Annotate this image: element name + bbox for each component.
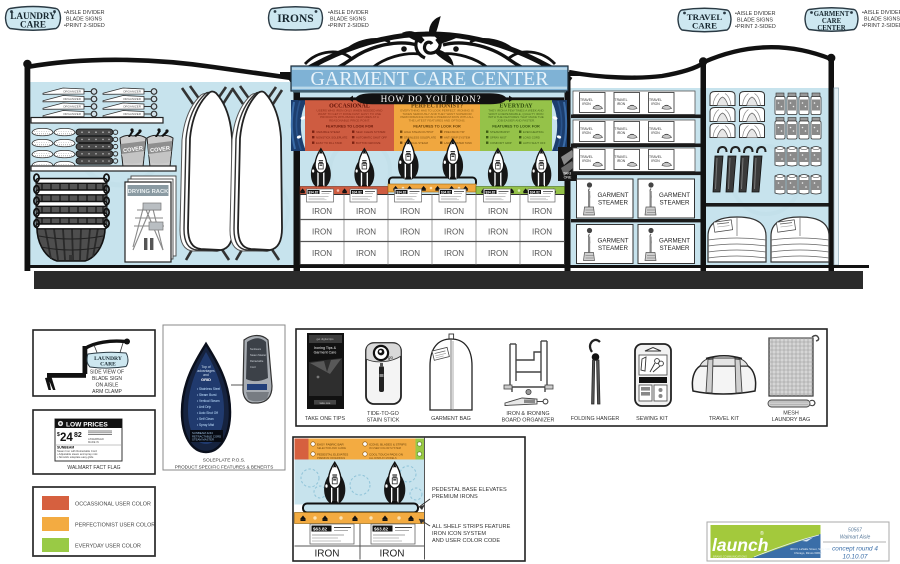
svg-text:IRON: IRON: [356, 228, 376, 237]
svg-text:IRONS: IRONS: [277, 13, 313, 25]
svg-text:ANTI DRIP SYSTEM: ANTI DRIP SYSTEM: [444, 136, 471, 140]
svg-text:Walmart Aisle: Walmart Aisle: [840, 535, 871, 541]
svg-text:PRECISION TIP: PRECISION TIP: [444, 130, 465, 134]
svg-text:HIGH STEAM OUTPUT: HIGH STEAM OUTPUT: [404, 130, 434, 134]
svg-text:LARGE WATER TANK: LARGE WATER TANK: [444, 141, 472, 145]
svg-text:LONG CORD: LONG CORD: [523, 136, 540, 140]
svg-text:launch: launch: [712, 535, 768, 555]
svg-text:AUTO SHUT OFF: AUTO SHUT OFF: [523, 141, 546, 145]
svg-text:DRYING RACK: DRYING RACK: [128, 189, 169, 195]
svg-text:IRON: IRON: [356, 249, 376, 258]
svg-text:IRON: IRON: [312, 207, 332, 216]
svg-text:concept round 4: concept round 4: [832, 546, 878, 553]
svg-text:SOLEPLATE P.O.S.: SOLEPLATE P.O.S.: [203, 458, 245, 464]
svg-text:$63.82: $63.82: [313, 527, 327, 532]
svg-text:24: 24: [60, 432, 73, 444]
svg-text:COMFORT GRIP: COMFORT GRIP: [490, 141, 512, 145]
svg-text:BLADE SIGNS: BLADE SIGNS: [330, 17, 366, 23]
svg-text:EVERYDAY USER COLOR: EVERYDAY USER COLOR: [75, 544, 141, 550]
svg-text:GARMENT BAG: GARMENT BAG: [431, 416, 471, 422]
svg-text:10.10.07: 10.10.07: [843, 554, 868, 561]
svg-text:BRAND COMMUNICATIONS: BRAND COMMUNICATIONS: [713, 555, 747, 559]
svg-text:CARE: CARE: [20, 20, 46, 30]
svg-text:SELF CLEAN SYSTEM: SELF CLEAN SYSTEM: [356, 130, 386, 134]
svg-text:Steam Master: Steam Master: [250, 353, 266, 357]
svg-text:IRON: IRON: [444, 228, 464, 237]
svg-text:FOLDING HANGER: FOLDING HANGER: [571, 416, 620, 422]
svg-text:LAUNDRY BAG: LAUNDRY BAG: [772, 417, 810, 423]
svg-text:CARE: CARE: [692, 21, 717, 31]
svg-text:SPRAY MIST: SPRAY MIST: [490, 136, 507, 140]
svg-text:• Anti Drip: • Anti Drip: [197, 405, 211, 409]
svg-text:TIDE-TO-GO: TIDE-TO-GO: [367, 411, 399, 417]
svg-text:•PRINT 2-SIDED: •PRINT 2-SIDED: [735, 24, 776, 30]
svg-text:PERFECTIONIST USER COLOR: PERFECTIONIST USER COLOR: [75, 523, 155, 529]
svg-text:IRON: IRON: [356, 207, 376, 216]
svg-text:50567: 50567: [848, 528, 862, 534]
svg-text:IN USER COLOR SYSTEM: IN USER COLOR SYSTEM: [369, 446, 401, 450]
svg-text:ONE: ONE: [564, 176, 572, 180]
svg-text:TRAVEL KIT: TRAVEL KIT: [709, 416, 740, 422]
svg-text:VARIABLE STEAM: VARIABLE STEAM: [316, 130, 341, 134]
svg-text:AND USER COLOR CODE: AND USER COLOR CODE: [432, 538, 500, 544]
svg-text:SELECTOR AND GUIDE: SELECTOR AND GUIDE: [317, 446, 346, 450]
svg-text:BLADE SIGNS: BLADE SIGNS: [737, 18, 773, 24]
svg-text:IRON: IRON: [488, 249, 508, 258]
svg-text:Cord: Cord: [250, 365, 256, 369]
svg-text:BUTTON GROOVE: BUTTON GROOVE: [356, 141, 381, 145]
svg-text:REASONABLE PRICE POINT.: REASONABLE PRICE POINT.: [329, 118, 370, 122]
svg-text:ON AISLE: ON AISLE: [96, 383, 119, 389]
svg-text:Sunbeam: Sunbeam: [250, 347, 261, 351]
svg-text:•PRINT 2-SIDED: •PRINT 2-SIDED: [328, 23, 369, 29]
svg-text:IRON: IRON: [488, 228, 508, 237]
svg-text:NONSTICK SOLEPLATE: NONSTICK SOLEPLATE: [316, 136, 347, 140]
svg-text:MADE IN: MADE IN: [88, 440, 99, 444]
svg-text:FEATURES TO LOOK FOR: FEATURES TO LOOK FOR: [492, 125, 540, 129]
svg-text:IRON: IRON: [488, 207, 508, 216]
svg-text:go: go: [388, 355, 393, 360]
svg-text:IRON: IRON: [312, 249, 332, 258]
svg-text:EASY FABRIC BAR: EASY FABRIC BAR: [317, 443, 344, 447]
svg-text:• Steam Burst: • Steam Burst: [197, 393, 217, 397]
svg-text:HOW DO YOU IRON?: HOW DO YOU IRON?: [381, 94, 482, 104]
svg-text:ALL SHELF STRIPS FEATURE: ALL SHELF STRIPS FEATURE: [432, 524, 511, 530]
svg-text:ALL DISPLAY MODELS: ALL DISPLAY MODELS: [369, 456, 397, 460]
svg-text:STEAM BURST: STEAM BURST: [490, 130, 510, 134]
svg-text:PEDESTAL BASE ELEVATES: PEDESTAL BASE ELEVATES: [432, 487, 507, 493]
svg-text:•AISLE DIVIDER: •AISLE DIVIDER: [328, 10, 369, 16]
svg-text:IRON & IRONING: IRON & IRONING: [506, 411, 549, 417]
svg-text:PREMIUM OFFERINGS: PREMIUM OFFERINGS: [317, 456, 345, 460]
svg-text:take one: take one: [320, 401, 331, 405]
svg-text:TAKE ONE TIPS: TAKE ONE TIPS: [305, 416, 346, 422]
svg-text:IRON: IRON: [532, 228, 552, 237]
svg-text:Garment Care: Garment Care: [314, 351, 337, 355]
svg-text:• Self Clean: • Self Clean: [197, 417, 214, 421]
svg-text:Ironing Tips &: Ironing Tips &: [314, 346, 337, 350]
svg-text:Chicago, Illinois 60610: Chicago, Illinois 60610: [794, 551, 823, 555]
svg-text:• Stainless Steel: • Stainless Steel: [197, 387, 220, 391]
svg-text:SEWING KIT: SEWING KIT: [636, 416, 668, 422]
svg-text:BOARD ORGANIZER: BOARD ORGANIZER: [502, 418, 555, 424]
svg-text:AUTOMATIC SHUT OFF: AUTOMATIC SHUT OFF: [356, 136, 387, 140]
svg-text:FEATURES TO LOOK FOR: FEATURES TO LOOK FOR: [326, 125, 374, 129]
svg-text:• Vertical Steam: • Vertical Steam: [197, 399, 220, 403]
svg-text:•AISLE DIVIDER: •AISLE DIVIDER: [64, 10, 105, 16]
svg-text:IRON: IRON: [400, 207, 420, 216]
svg-text:IRON ICON SYSTEM: IRON ICON SYSTEM: [432, 531, 486, 537]
svg-text:IRON: IRON: [444, 249, 464, 258]
svg-text:IRON: IRON: [312, 228, 332, 237]
svg-text:• Auto Shut Off: • Auto Shut Off: [197, 411, 218, 415]
svg-text:BLADE SIGNS: BLADE SIGNS: [66, 17, 102, 23]
svg-text:• Nonstick soleplate easy glid: • Nonstick soleplate easy glide: [57, 455, 94, 459]
svg-text:SUNBEAM: SUNBEAM: [57, 446, 74, 450]
svg-text:JOB EASIER AND FASTER.: JOB EASIER AND FASTER.: [497, 118, 535, 122]
svg-text:LOW PRICES: LOW PRICES: [66, 422, 108, 429]
svg-text:Retractable: Retractable: [250, 359, 264, 363]
svg-text:EVEN HEATING: EVEN HEATING: [523, 130, 544, 134]
svg-text:BLADE SIGNS: BLADE SIGNS: [864, 17, 900, 23]
svg-text:MESH: MESH: [783, 411, 799, 417]
svg-text:CENTER: CENTER: [817, 25, 845, 32]
svg-text:OCCASSIONAL USER COLOR: OCCASSIONAL USER COLOR: [75, 502, 151, 508]
svg-text:82: 82: [74, 432, 82, 439]
svg-text:IRON: IRON: [315, 549, 340, 560]
svg-text:IRON: IRON: [532, 207, 552, 216]
svg-text:IRON: IRON: [444, 207, 464, 216]
svg-text:• Spray Mist: • Spray Mist: [197, 423, 214, 427]
svg-text:PREMIUM IRONS: PREMIUM IRONS: [432, 494, 478, 500]
svg-text:®: ®: [760, 530, 764, 537]
svg-text:STEAM MASTER: STEAM MASTER: [192, 438, 214, 442]
svg-text:IRON: IRON: [380, 549, 405, 560]
svg-text:CARE: CARE: [822, 18, 842, 25]
svg-text:IRON: IRON: [400, 249, 420, 258]
svg-text:PRODUCT SPECIFIC FEATURES & BE: PRODUCT SPECIFIC FEATURES & BENEFITS: [175, 465, 274, 470]
svg-text:EASY TO FILL TANK: EASY TO FILL TANK: [316, 141, 342, 145]
svg-text:get digital tips: get digital tips: [316, 337, 334, 341]
svg-text:•AISLE DIVIDER: •AISLE DIVIDER: [862, 10, 900, 16]
svg-text:CARE: CARE: [100, 362, 116, 368]
svg-text:GARMENT: GARMENT: [814, 11, 850, 18]
svg-text:•PRINT 2-SIDED: •PRINT 2-SIDED: [64, 23, 105, 29]
svg-text:FEATURES TO LOOK FOR: FEATURES TO LOOK FOR: [413, 125, 461, 129]
svg-text:IRON: IRON: [532, 249, 552, 258]
svg-text:WALMART FACT FLAG: WALMART FACT FLAG: [67, 465, 120, 471]
svg-text:THE LATEST FEATURES AND OPTION: THE LATEST FEATURES AND OPTIONS.: [409, 118, 466, 122]
svg-text:GARMENT CARE CENTER: GARMENT CARE CENTER: [311, 69, 549, 90]
svg-text:IRON: IRON: [400, 228, 420, 237]
svg-text:•PRINT 2-SIDED: •PRINT 2-SIDED: [862, 23, 900, 29]
svg-text:ICONS, BLADES & STRIPS: ICONS, BLADES & STRIPS: [369, 443, 407, 447]
svg-text:•AISLE DIVIDER: •AISLE DIVIDER: [735, 11, 776, 17]
svg-text:GRID: GRID: [201, 377, 211, 382]
svg-text:STAIN STICK: STAIN STICK: [367, 418, 400, 424]
svg-text:SIDE VIEW OF: SIDE VIEW OF: [90, 370, 124, 376]
svg-text:ARM CLAMP: ARM CLAMP: [92, 389, 122, 395]
svg-text:BLADE SIGN: BLADE SIGN: [92, 376, 122, 382]
svg-text:$63.82: $63.82: [374, 527, 388, 532]
